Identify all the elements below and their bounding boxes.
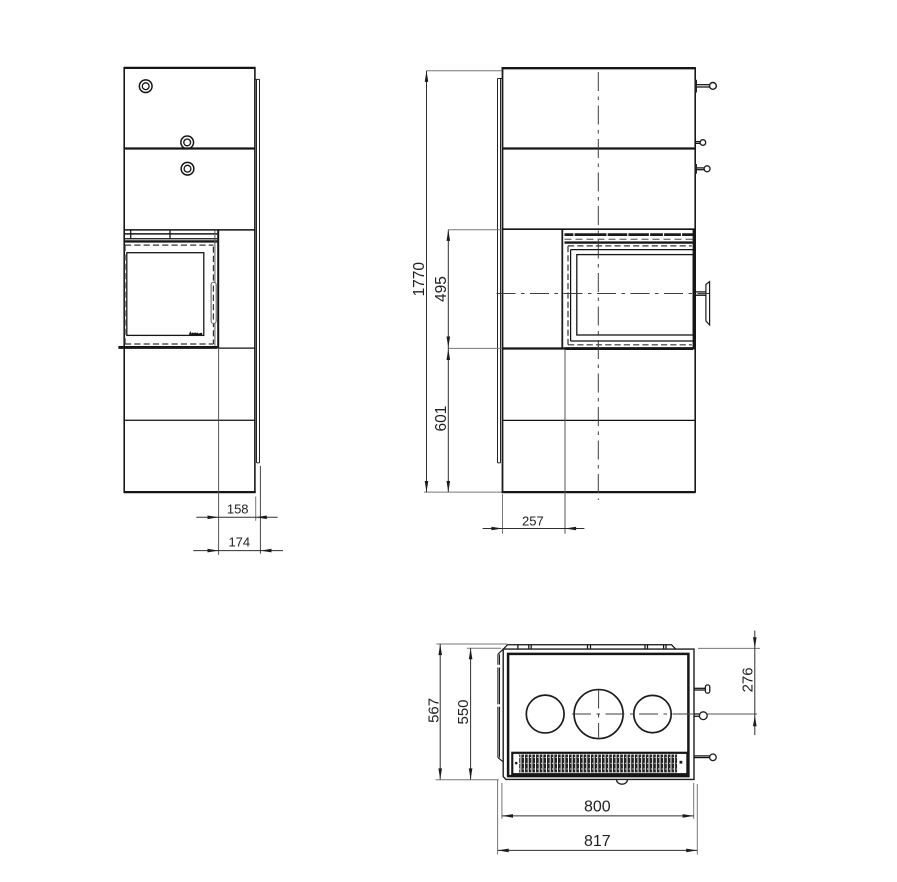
svg-text:800: 800: [584, 799, 611, 816]
svg-text:257: 257: [522, 513, 544, 528]
svg-text:567: 567: [426, 698, 443, 723]
svg-text:1770: 1770: [411, 262, 428, 297]
svg-text:817: 817: [584, 833, 611, 850]
svg-text:601: 601: [433, 406, 450, 432]
svg-text:174: 174: [228, 534, 250, 549]
svg-text:495: 495: [433, 276, 450, 302]
svg-text:550: 550: [455, 699, 472, 724]
svg-text:158: 158: [227, 502, 249, 517]
svg-text:276: 276: [739, 667, 756, 692]
